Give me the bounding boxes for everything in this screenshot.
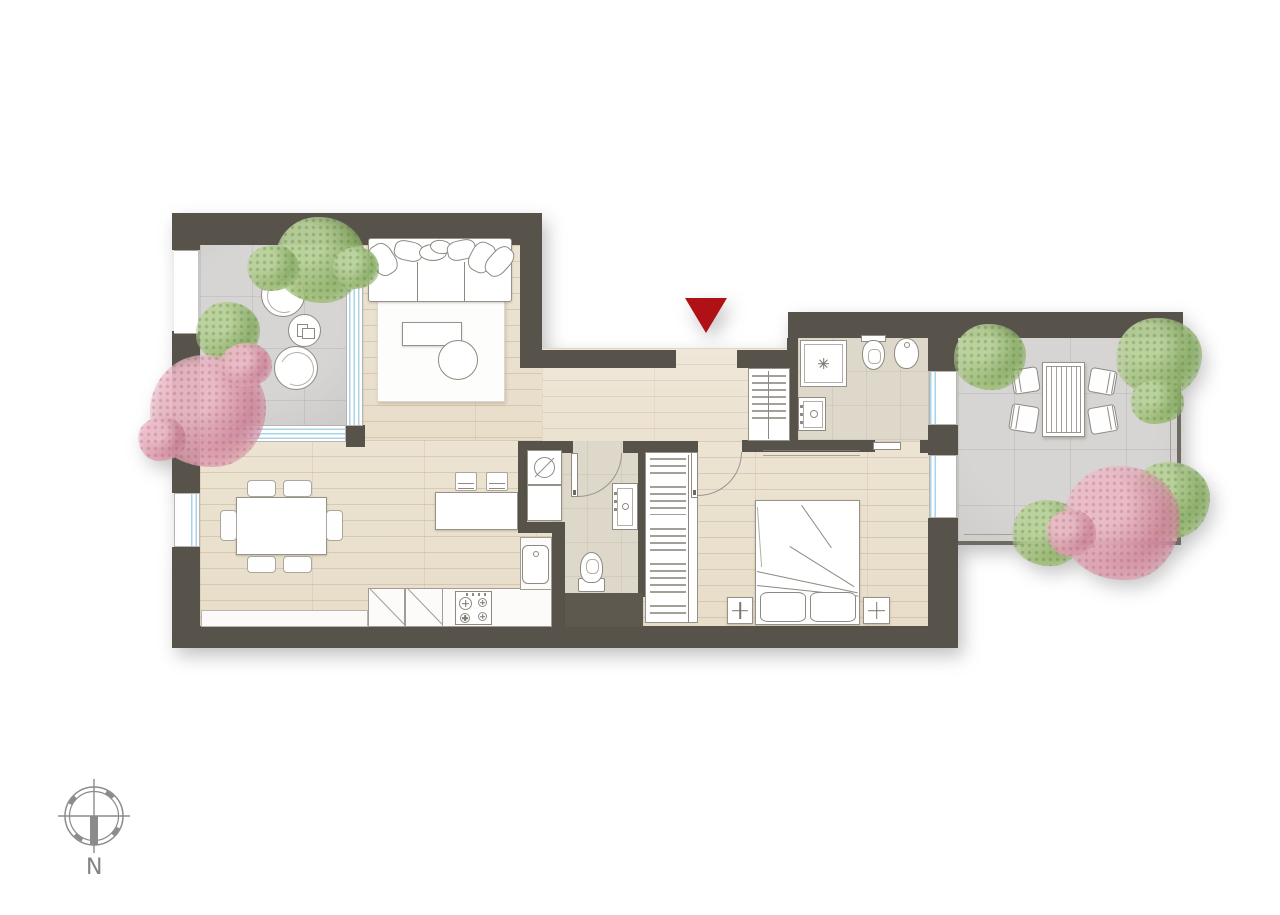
- tree-lobe: [247, 245, 299, 291]
- blanket-fold: [757, 507, 762, 567]
- tree-lobe: [1130, 380, 1184, 424]
- burner: [460, 613, 470, 623]
- tree-green: [275, 217, 365, 303]
- bench-plinth: [201, 610, 368, 627]
- vanity-sink: [798, 397, 826, 431]
- chair-back: [1107, 406, 1117, 430]
- drain: [810, 410, 818, 418]
- burner: [478, 612, 487, 621]
- tv-shelf-line: [763, 450, 860, 456]
- blanket-fold: [801, 505, 832, 548]
- dining-chair: [283, 480, 312, 497]
- wall: [518, 522, 565, 533]
- stool: [455, 472, 477, 491]
- tree-lobe: [138, 417, 186, 461]
- outdoor-chair: [1008, 403, 1040, 434]
- bed-pillow: [760, 592, 806, 622]
- stool-detail: [489, 483, 505, 489]
- wardrobe-gap: [650, 554, 686, 563]
- compass-rose: N: [40, 770, 150, 880]
- wall: [520, 213, 542, 353]
- kitchen-sink: [522, 545, 549, 584]
- bidet: [894, 338, 919, 369]
- burner: [478, 598, 487, 607]
- dining-chair: [247, 480, 276, 497]
- faucet-dots: [800, 405, 803, 427]
- chair-back: [1010, 405, 1020, 429]
- bed-pillow: [810, 592, 856, 622]
- door-handle: [573, 490, 576, 495]
- door-leaf: [571, 453, 578, 497]
- terrace-side-table: [288, 314, 321, 347]
- wall: [520, 350, 676, 368]
- washing-machine: [527, 450, 562, 485]
- compass-north-label: N: [86, 855, 102, 880]
- wall: [346, 425, 365, 447]
- toilet-bowl: [586, 559, 599, 574]
- vanity-sink: [612, 483, 638, 530]
- wardrobe-gap: [650, 476, 686, 485]
- outdoor-chair: [1087, 367, 1118, 396]
- coffee-table-round: [438, 340, 478, 380]
- door-handle: [693, 490, 696, 495]
- island-table: [435, 492, 518, 530]
- wall: [737, 350, 790, 368]
- tree-lobe: [1046, 510, 1096, 556]
- wardrobe-gap: [650, 593, 686, 602]
- apartment-floor-plan: [0, 0, 1280, 915]
- sofa-seat-line: [464, 262, 465, 301]
- sliding-door: [873, 442, 901, 450]
- dining-chair: [220, 510, 237, 541]
- sofa-seat-line: [417, 262, 418, 301]
- corner-cabinet: [405, 588, 443, 627]
- chair-back: [1106, 372, 1116, 394]
- closet-shelves: [752, 375, 786, 421]
- tree-green: [1116, 318, 1202, 396]
- drain: [622, 503, 629, 510]
- entrance-closet: [748, 368, 790, 441]
- window-glass: [930, 456, 938, 517]
- floor-plan-page: N: [0, 0, 1280, 915]
- dining-chair: [283, 556, 312, 573]
- wall: [552, 533, 565, 627]
- wardrobe-gap: [650, 515, 686, 524]
- tree-pink: [150, 355, 266, 467]
- nightstand: [863, 597, 890, 624]
- lounge-chair: [274, 346, 318, 390]
- corner-cabinet: [368, 588, 405, 627]
- shower: [800, 340, 847, 387]
- wardrobe-divider: [688, 455, 689, 622]
- door-leaf: [691, 452, 698, 498]
- burner: [459, 597, 472, 610]
- toilet: [580, 552, 603, 583]
- dining-table: [236, 497, 327, 555]
- table-object: [302, 328, 315, 339]
- cooktop-knobs: [466, 593, 490, 596]
- stool: [486, 472, 508, 491]
- tree-lobe: [333, 247, 379, 289]
- nightstand: [727, 597, 753, 624]
- window-glass: [930, 372, 938, 424]
- entrance-marker-icon: [685, 298, 727, 333]
- laundry-cabinet: [527, 485, 562, 521]
- outdoor-table: [1042, 362, 1085, 437]
- dining-chair: [326, 510, 343, 541]
- cabinet-diagonal: [369, 588, 405, 626]
- wall: [518, 441, 527, 533]
- wall: [172, 626, 958, 648]
- duct-shaft: [565, 593, 643, 627]
- wall: [172, 213, 200, 250]
- faucet-dots: [614, 492, 617, 514]
- cabinet-diagonal: [406, 588, 443, 626]
- tree-green: [954, 324, 1026, 390]
- table-slats: [1046, 366, 1081, 433]
- faucet-dot-icon: [533, 551, 539, 557]
- wall: [928, 425, 958, 455]
- toilet: [862, 340, 885, 370]
- compass-needle: [90, 816, 98, 845]
- faucet-dot-icon: [904, 342, 910, 348]
- terrace-opening: [174, 250, 198, 334]
- outdoor-chair: [1087, 404, 1119, 435]
- closet-divider: [768, 371, 769, 439]
- window-glass: [191, 494, 199, 546]
- toilet-bowl: [868, 349, 881, 364]
- cooktop: [455, 591, 492, 625]
- wall: [928, 518, 958, 648]
- stool-detail: [458, 483, 474, 489]
- tree-pink: [1062, 466, 1180, 580]
- dining-chair: [247, 556, 276, 573]
- tree-lobe: [220, 343, 272, 387]
